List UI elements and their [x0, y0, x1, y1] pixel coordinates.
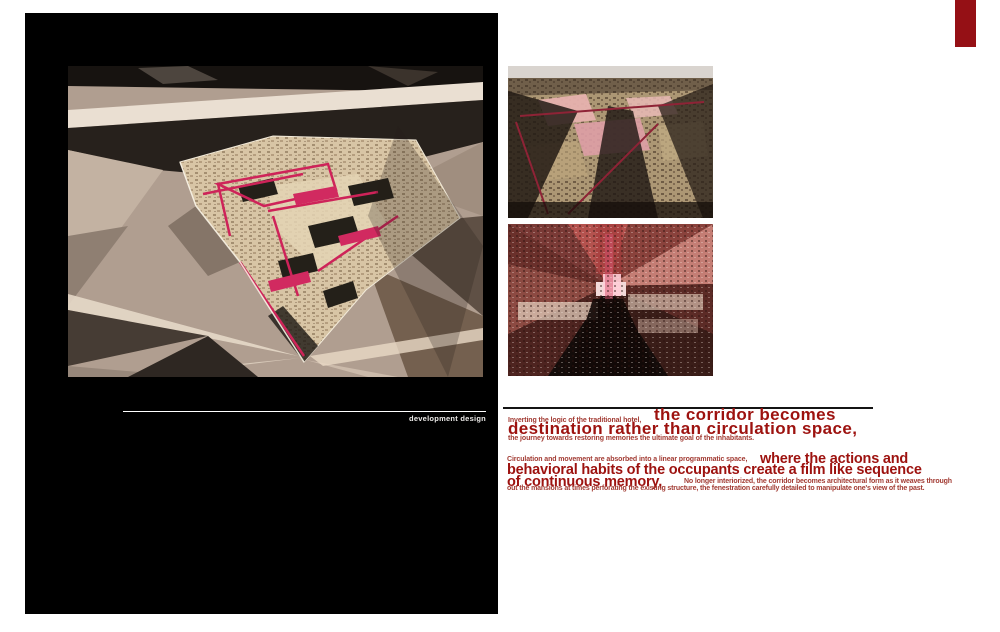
accent-red-rectangle: [955, 0, 976, 47]
development-design-main-render: [68, 66, 483, 377]
statement1-small-tail: the journey towards restoring memories t…: [508, 435, 754, 442]
hotel-massing-render: [508, 66, 713, 218]
caption-rule: [123, 411, 486, 412]
statement2-small-tail2: out the mansions at times perforating th…: [507, 485, 924, 492]
corridor-interior-render: [508, 224, 713, 376]
left-black-panel: development design: [25, 13, 498, 614]
statement2-small-tail1: No longer interiorized, the corridor bec…: [684, 478, 952, 485]
panel-caption: development design: [25, 414, 486, 423]
